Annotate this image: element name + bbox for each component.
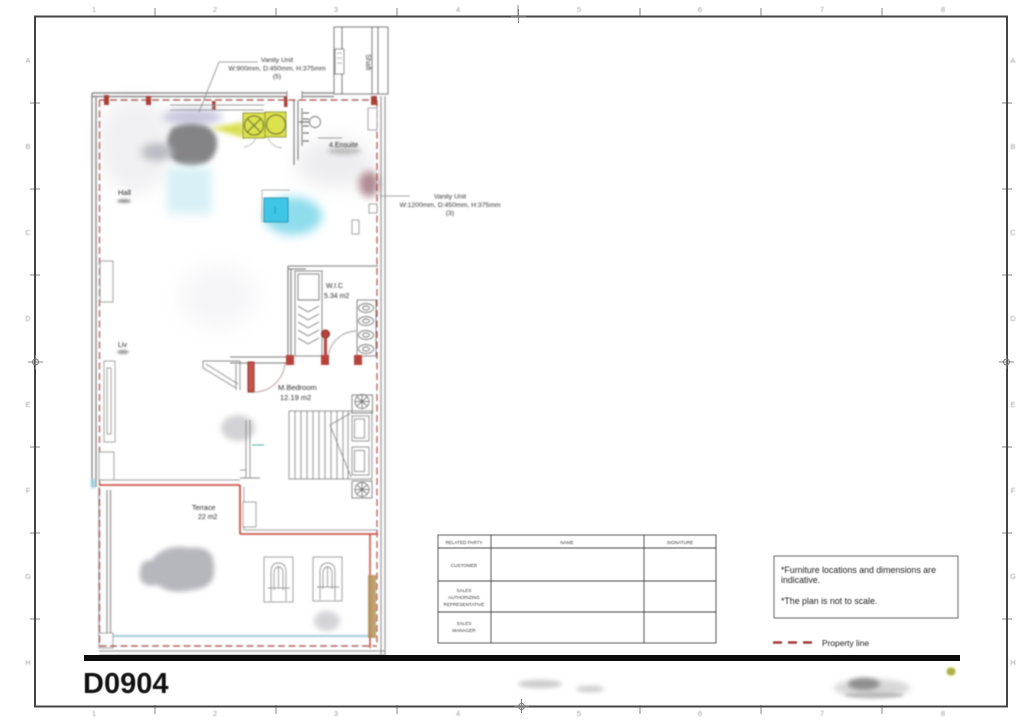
svg-text:G: G: [1010, 572, 1016, 581]
svg-text:A: A: [25, 56, 30, 65]
svg-text:Vanity Unit: Vanity Unit: [261, 57, 293, 64]
svg-text:4.Ensuite: 4.Ensuite: [329, 142, 358, 149]
svg-text:F: F: [1011, 486, 1016, 495]
svg-text:CUSTOMER: CUSTOMER: [451, 563, 478, 568]
svg-text:E: E: [25, 400, 30, 409]
svg-text:D: D: [1010, 314, 1016, 323]
svg-text:indicative.: indicative.: [781, 575, 820, 585]
svg-text:4: 4: [456, 5, 460, 14]
svg-text:3: 3: [334, 709, 338, 718]
svg-text:D0904: D0904: [83, 668, 168, 700]
svg-text:AUTHORIZING: AUTHORIZING: [448, 595, 480, 600]
svg-text:Liv: Liv: [118, 342, 127, 349]
svg-text:5: 5: [577, 709, 581, 718]
svg-text:7: 7: [820, 5, 824, 14]
svg-text:RELATED PARTY: RELATED PARTY: [445, 540, 482, 545]
svg-text:2: 2: [213, 709, 217, 718]
svg-text:5: 5: [577, 5, 581, 14]
svg-text:*Furniture locations and dimen: *Furniture locations and dimensions are: [781, 565, 936, 575]
svg-text:W.I.C: W.I.C: [326, 283, 343, 290]
svg-text:8: 8: [941, 709, 945, 718]
svg-text:4: 4: [456, 709, 460, 718]
svg-text:MANAGER: MANAGER: [452, 628, 476, 633]
svg-text:Terrace: Terrace: [192, 505, 215, 512]
svg-text:SALES: SALES: [457, 588, 472, 593]
svg-text:1: 1: [92, 5, 96, 14]
svg-text:H: H: [1010, 658, 1015, 667]
svg-text:E: E: [1010, 400, 1015, 409]
svg-text:SIGNATURE: SIGNATURE: [667, 540, 693, 545]
svg-text:(5): (5): [273, 74, 281, 81]
svg-text:H: H: [25, 658, 30, 667]
svg-text:M.Bedroom: M.Bedroom: [278, 383, 317, 392]
svg-text:Shaft: Shaft: [364, 54, 371, 70]
svg-text:G: G: [25, 572, 31, 581]
svg-text:REPRESENTATIVE: REPRESENTATIVE: [444, 602, 485, 607]
svg-text:7: 7: [820, 709, 824, 718]
svg-text:B: B: [25, 142, 30, 151]
svg-text:C: C: [25, 228, 31, 237]
svg-text:F: F: [26, 486, 31, 495]
svg-text:*The plan is not to scale.: *The plan is not to scale.: [781, 596, 877, 606]
svg-text:SALES: SALES: [457, 621, 472, 626]
svg-text:C: C: [1010, 228, 1016, 237]
svg-text:W:900mm, D:450mm, H:375mm: W:900mm, D:450mm, H:375mm: [228, 66, 326, 73]
svg-text:5.34 m2: 5.34 m2: [324, 293, 349, 300]
svg-text:1: 1: [92, 709, 96, 718]
svg-text:6: 6: [698, 709, 702, 718]
svg-text:W:1200mm, D:450mm, H:375mm: W:1200mm, D:450mm, H:375mm: [399, 202, 500, 209]
svg-text:3: 3: [334, 5, 338, 14]
svg-text:A: A: [1010, 56, 1015, 65]
svg-text:6: 6: [698, 5, 702, 14]
svg-text:2: 2: [213, 5, 217, 14]
svg-text:8: 8: [941, 5, 945, 14]
svg-text:(3): (3): [446, 210, 454, 217]
svg-text:Hall: Hall: [118, 188, 131, 197]
svg-text:D: D: [25, 314, 31, 323]
svg-text:B: B: [1010, 142, 1015, 151]
svg-text:Vanity Unit: Vanity Unit: [434, 194, 466, 201]
svg-text:Property line: Property line: [822, 638, 869, 648]
svg-text:12.19 m2: 12.19 m2: [280, 393, 311, 402]
svg-text:NAME: NAME: [560, 540, 573, 545]
svg-text:22 m2: 22 m2: [198, 514, 218, 521]
